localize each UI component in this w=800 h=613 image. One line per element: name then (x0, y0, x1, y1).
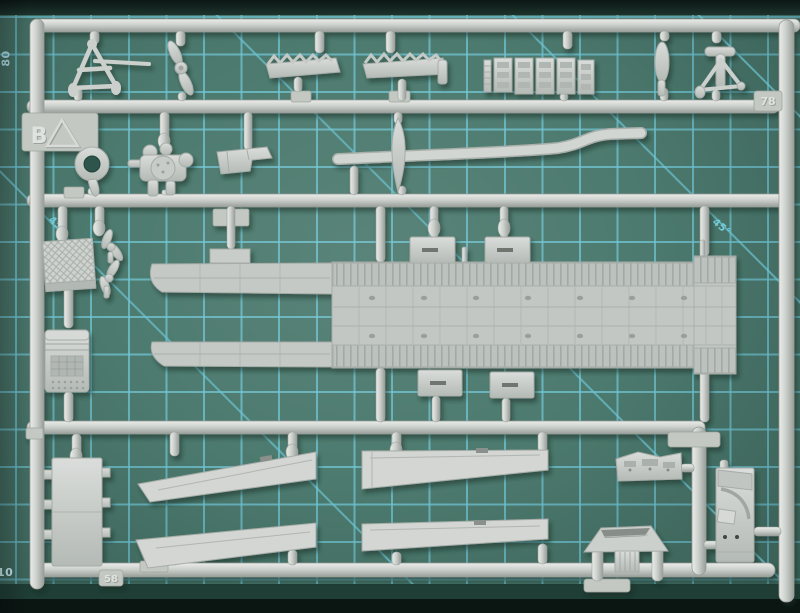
stepped-bracket-part (217, 147, 272, 174)
small-blade-part (655, 42, 669, 96)
main-deck-part (150, 249, 736, 374)
serrated-rack-part-2 (363, 54, 447, 84)
blank-tab (291, 91, 311, 102)
windscreen-frame-part (584, 526, 668, 552)
radiator-block-part (45, 330, 89, 392)
serrated-rack-part-1 (266, 55, 340, 78)
tiny-propeller-part-2 (98, 258, 122, 298)
blank-tab (64, 187, 84, 198)
runner-left (30, 19, 44, 589)
diamond-plate-box-part (42, 238, 95, 291)
vertical-blade-part (392, 118, 405, 192)
sprue-frame: B B 78 78 58 58 (0, 0, 800, 613)
wing-half-upper-left (138, 452, 316, 502)
part-number-bottom: 58 (104, 574, 118, 585)
small-propeller-part (165, 39, 196, 97)
cockpit-sidewall-part (716, 468, 754, 562)
ribbed-block-part (615, 551, 639, 572)
part-number-right: 78 (760, 95, 775, 108)
frame-letter: B (31, 124, 48, 149)
blank-tab (584, 579, 630, 592)
runner-4 (27, 421, 705, 434)
cast-detail-part (616, 452, 682, 481)
rectangular-panel-part (44, 458, 110, 566)
runner-top (34, 19, 800, 32)
engine-block-part (128, 143, 193, 196)
photo-model-sprue-on-cutting-mat: 80 45 45° 10 0 (0, 0, 800, 613)
runner-inner-right (692, 427, 706, 575)
equipment-block-cluster-part (484, 58, 594, 94)
tail-strut-part (695, 47, 745, 98)
landing-gear-frame-part (68, 39, 149, 97)
runner-3 (27, 194, 791, 207)
wing-half-upper-right (362, 448, 548, 489)
blank-tab (26, 428, 43, 439)
blank-tab (668, 432, 720, 447)
long-float-part (338, 133, 641, 159)
wing-half-lower-right (362, 519, 548, 551)
